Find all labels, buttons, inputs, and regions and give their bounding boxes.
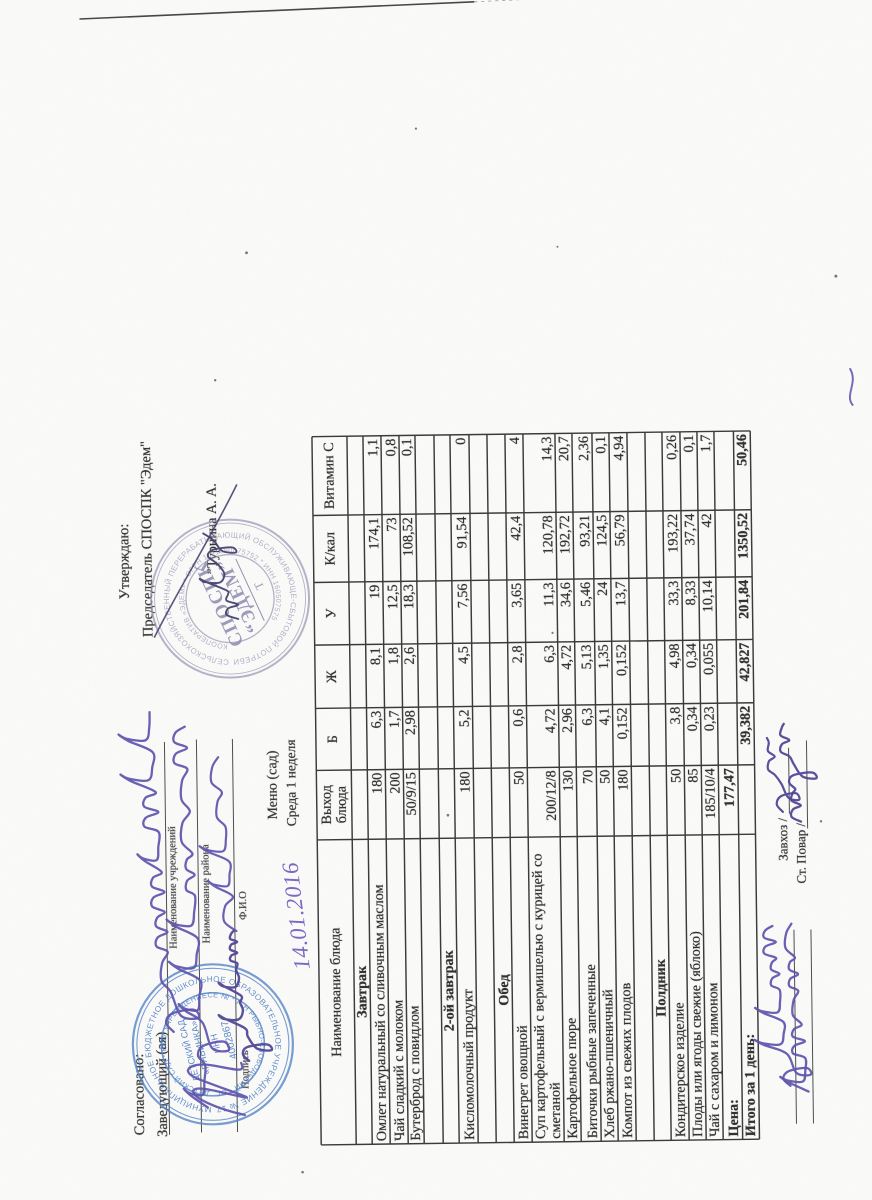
svg-text:Т: Т: [251, 579, 267, 592]
svg-text:14.01.2016: 14.01.2016: [277, 861, 315, 972]
